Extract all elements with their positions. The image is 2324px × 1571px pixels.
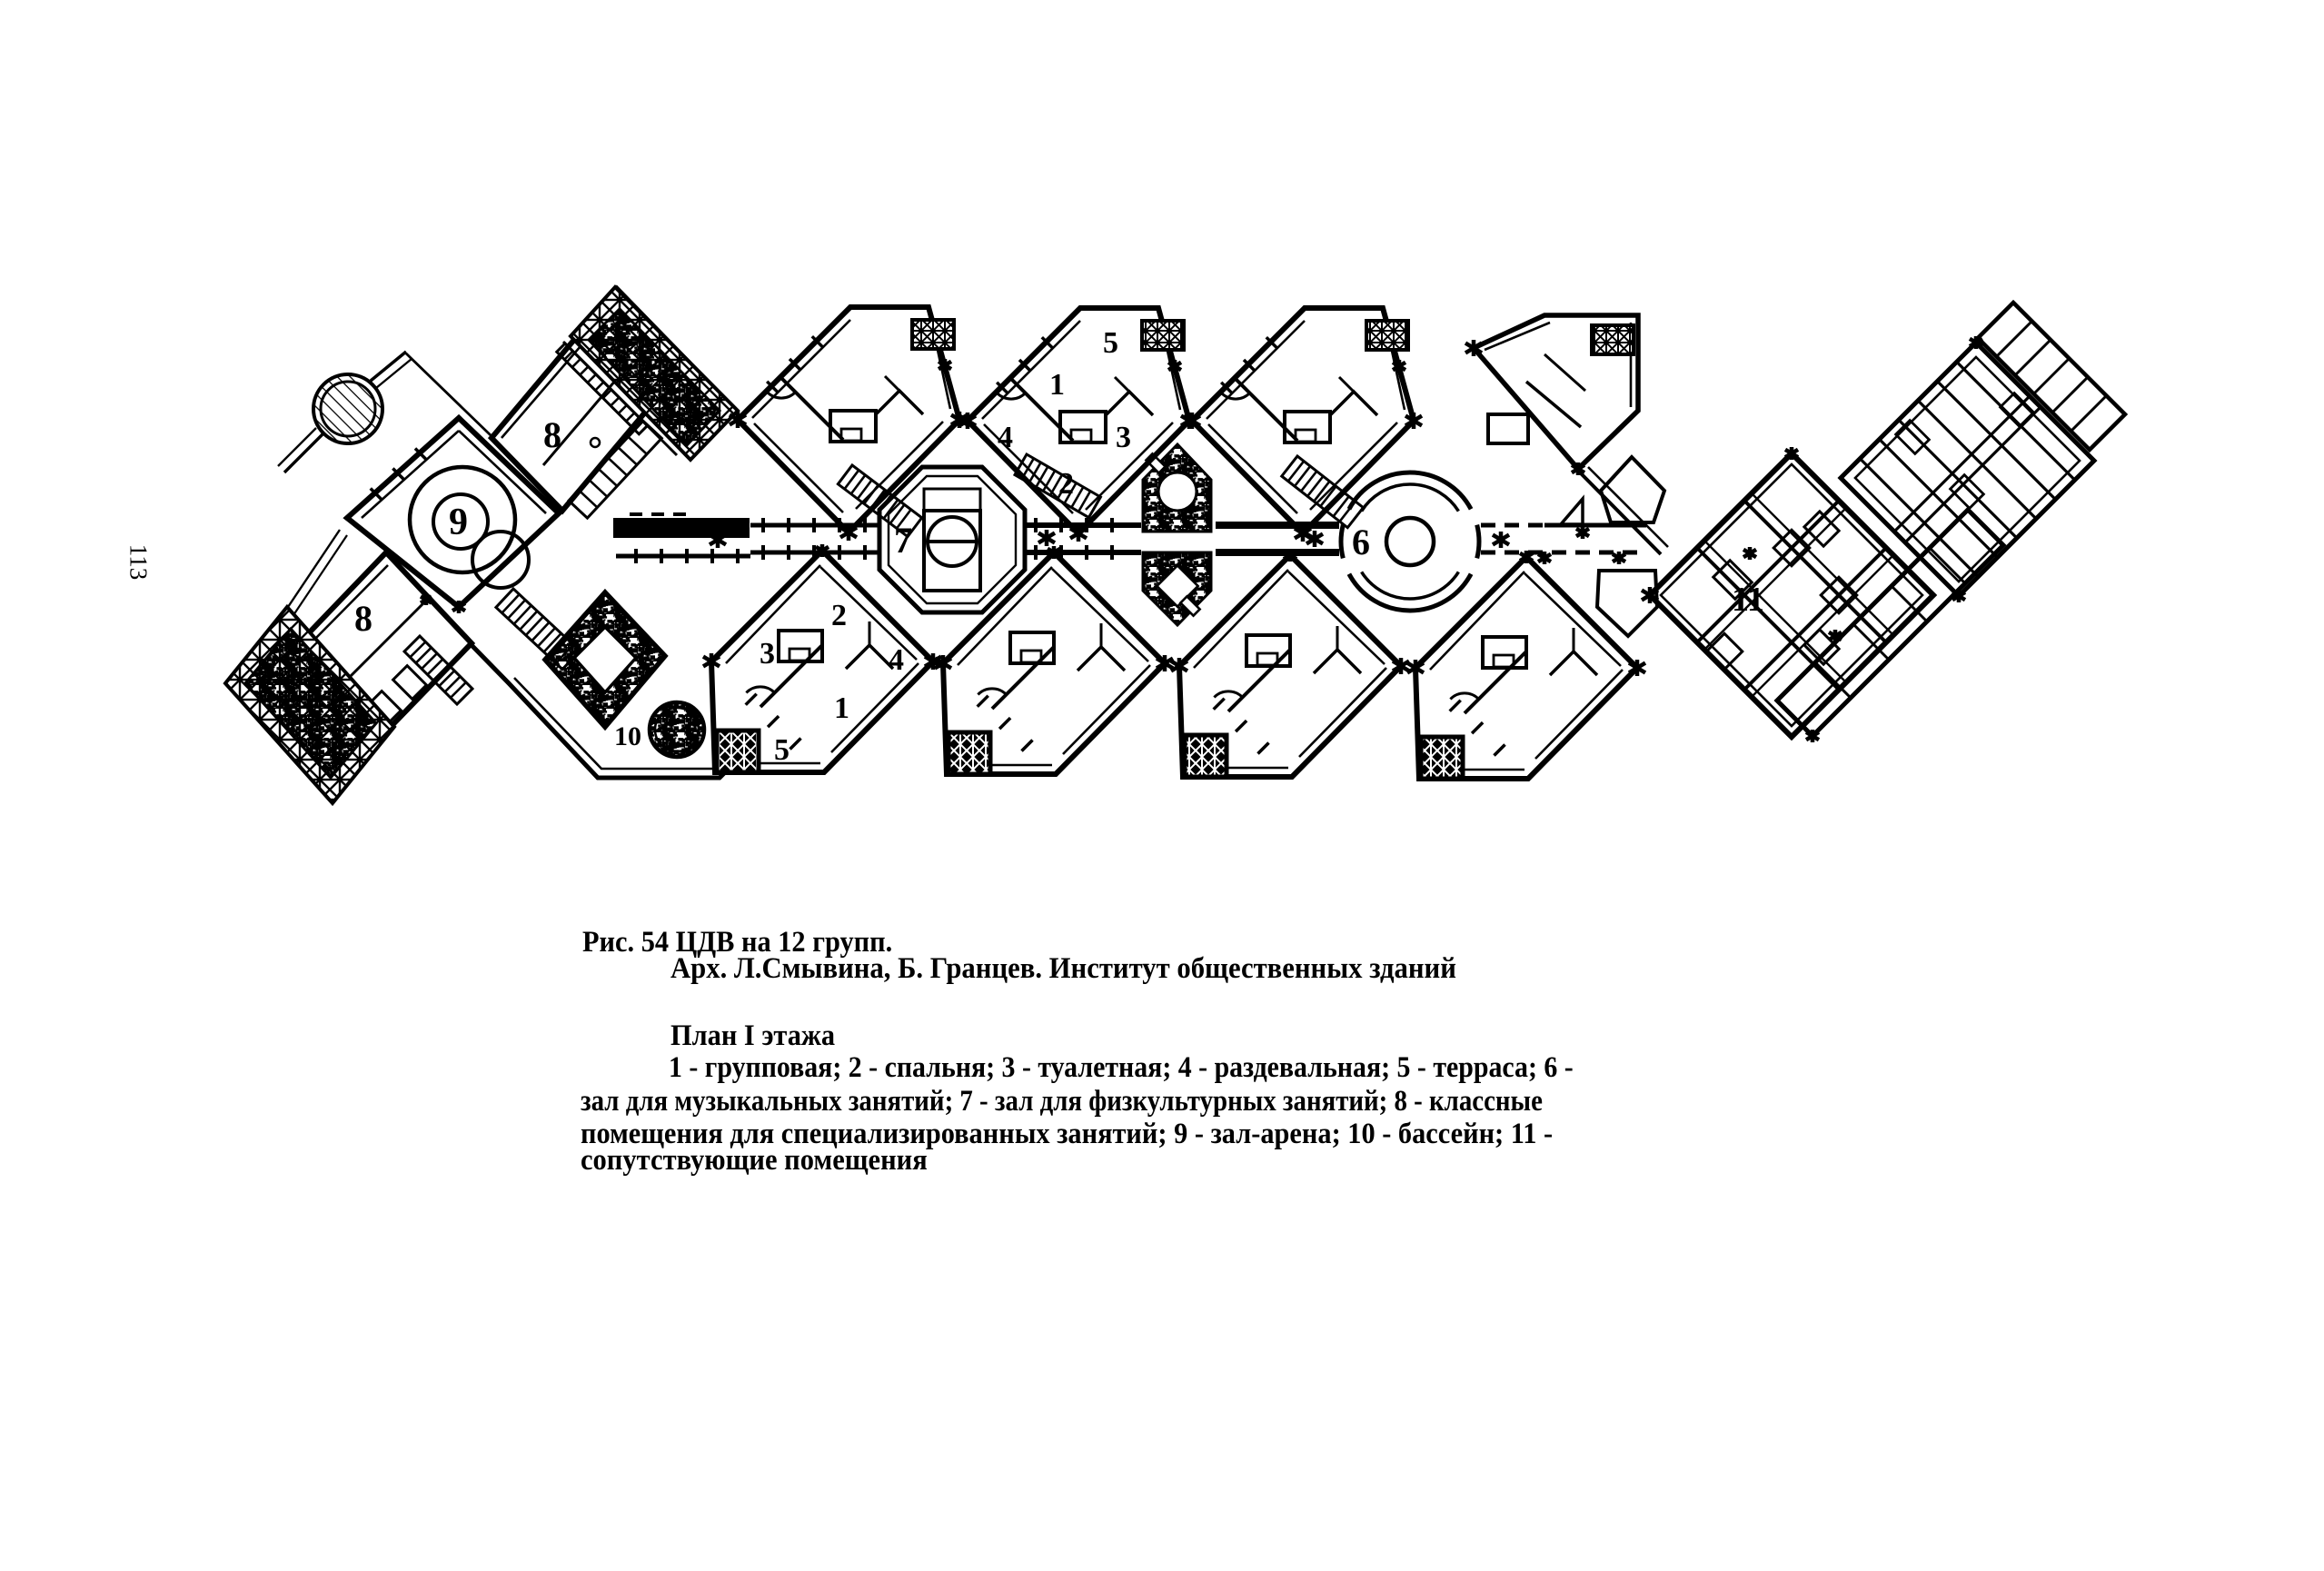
svg-text:9: 9 xyxy=(449,502,468,543)
svg-text:8: 8 xyxy=(354,598,372,639)
svg-text:1: 1 xyxy=(834,691,849,725)
svg-text:3: 3 xyxy=(1116,421,1131,454)
svg-text:3: 3 xyxy=(760,637,775,671)
svg-text:2: 2 xyxy=(831,599,847,632)
svg-text:5: 5 xyxy=(1103,326,1118,360)
svg-text:7: 7 xyxy=(894,520,912,561)
svg-text:4: 4 xyxy=(998,421,1013,454)
svg-text:11: 11 xyxy=(1732,581,1764,619)
svg-text:1: 1 xyxy=(1049,368,1065,402)
svg-text:4: 4 xyxy=(889,643,904,677)
svg-text:5: 5 xyxy=(774,733,790,767)
svg-text:10: 10 xyxy=(614,721,641,751)
svg-text:8: 8 xyxy=(543,414,561,455)
svg-text:6: 6 xyxy=(1352,522,1370,562)
